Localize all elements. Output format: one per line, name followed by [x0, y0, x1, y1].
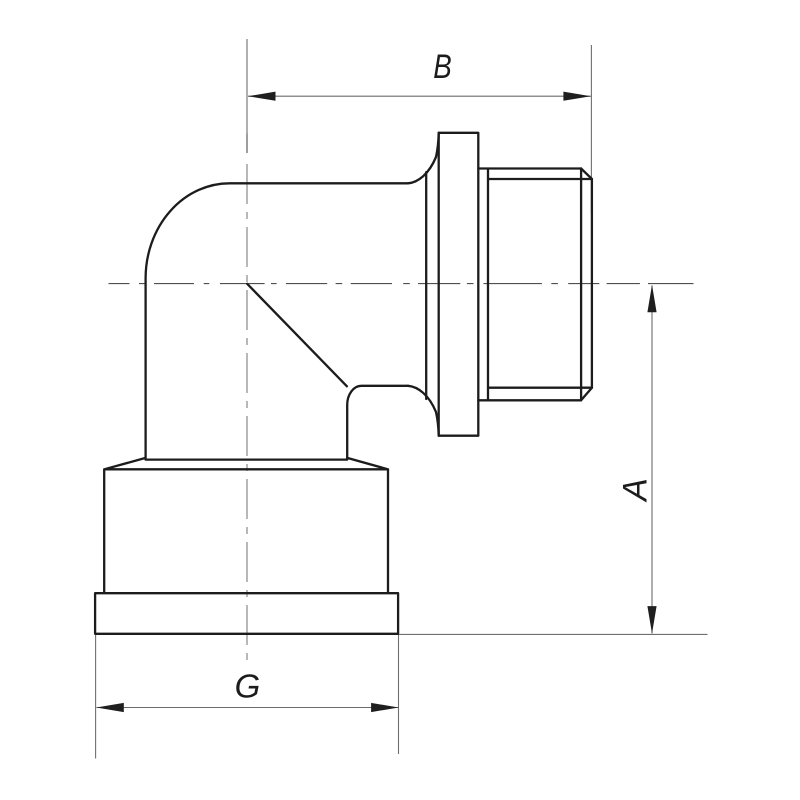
- svg-text:G: G: [235, 668, 261, 705]
- svg-text:B: B: [433, 48, 452, 86]
- svg-text:A: A: [616, 478, 654, 503]
